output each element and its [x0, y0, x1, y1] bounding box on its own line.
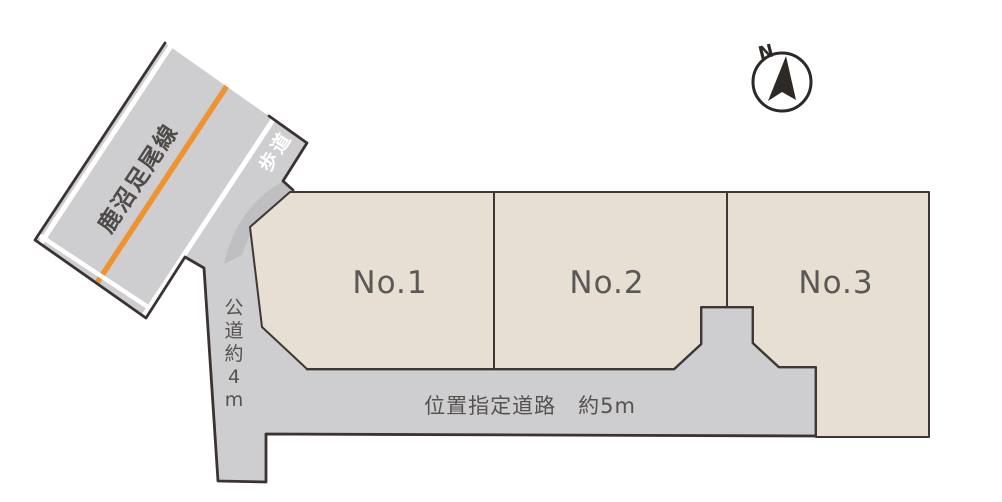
plot-no3-label: No.3: [798, 265, 873, 301]
plot-no1-label: No.1: [352, 265, 427, 301]
public-road-label: 公道約4m: [224, 297, 243, 411]
plot-map-diagram: 鹿沼足尾線 歩道 No.1 No.2 No.3 公道約4m 位置指定道路 約5m…: [0, 0, 1002, 502]
site-plan-canvas: 鹿沼足尾線 歩道 No.1 No.2 No.3 公道約4m 位置指定道路 約5m…: [0, 0, 1002, 502]
plot-no2-label: No.2: [569, 265, 644, 301]
compass: N: [753, 40, 811, 111]
compass-north-label: N: [756, 40, 776, 64]
designated-road-label: 位置指定道路 約5m: [424, 394, 636, 418]
